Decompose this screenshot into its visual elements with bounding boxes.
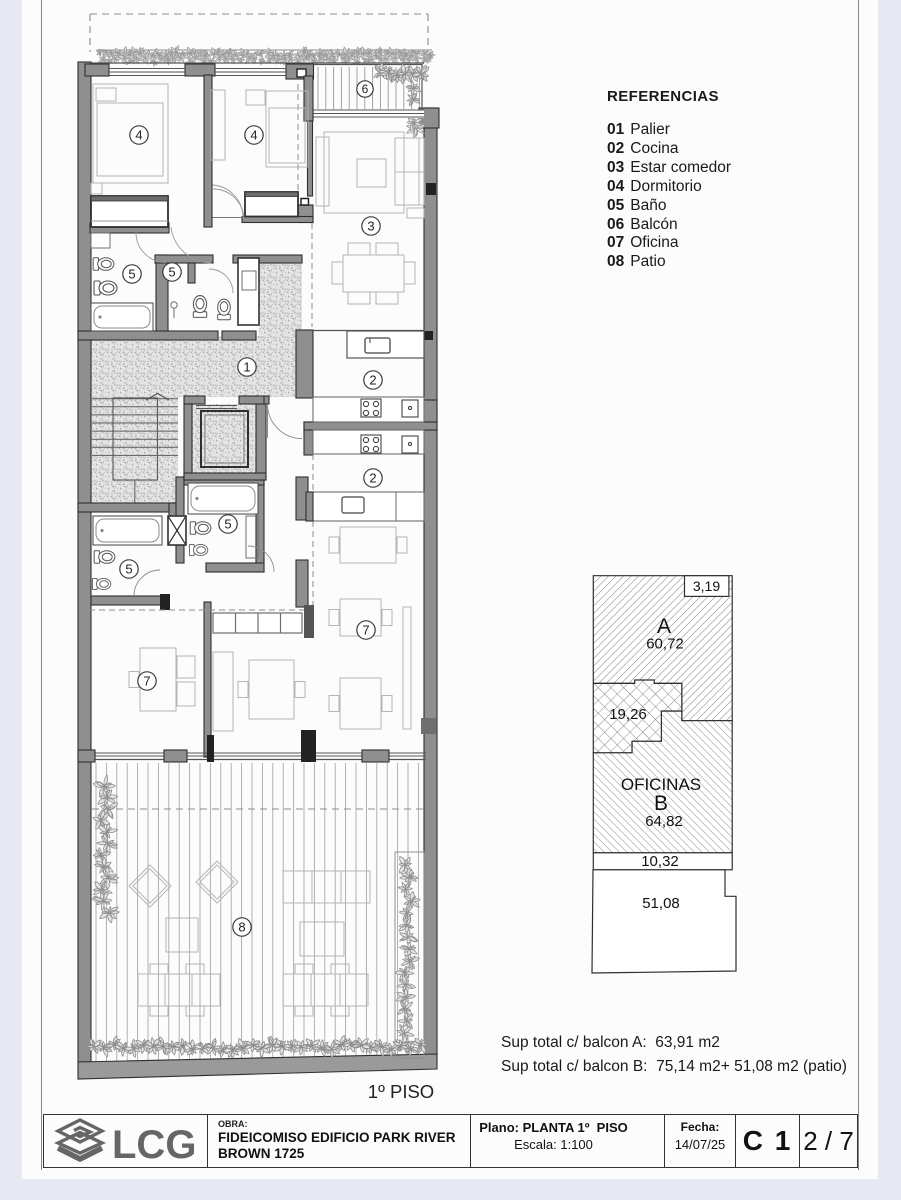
svg-text:4: 4 bbox=[250, 128, 257, 143]
svg-text:6: 6 bbox=[362, 82, 369, 96]
svg-text:5: 5 bbox=[128, 267, 135, 282]
svg-text:B: B bbox=[654, 792, 668, 815]
svg-text:7: 7 bbox=[362, 623, 369, 638]
svg-text:5: 5 bbox=[224, 517, 231, 532]
svg-text:3: 3 bbox=[367, 219, 374, 234]
svg-text:2: 2 bbox=[369, 373, 376, 388]
svg-text:8: 8 bbox=[238, 920, 245, 935]
svg-text:2: 2 bbox=[369, 471, 376, 486]
svg-text:60,72: 60,72 bbox=[646, 636, 684, 653]
svg-text:7: 7 bbox=[143, 674, 150, 689]
svg-text:5: 5 bbox=[168, 265, 175, 280]
svg-text:3,19: 3,19 bbox=[693, 578, 720, 594]
svg-text:1: 1 bbox=[243, 360, 250, 375]
svg-text:5: 5 bbox=[125, 562, 132, 577]
svg-text:LCG: LCG bbox=[112, 1123, 196, 1167]
svg-text:19,26: 19,26 bbox=[609, 706, 647, 723]
svg-text:51,08: 51,08 bbox=[642, 895, 680, 912]
svg-text:10,32: 10,32 bbox=[641, 853, 679, 870]
svg-text:4: 4 bbox=[135, 128, 142, 143]
svg-text:64,82: 64,82 bbox=[645, 813, 683, 830]
